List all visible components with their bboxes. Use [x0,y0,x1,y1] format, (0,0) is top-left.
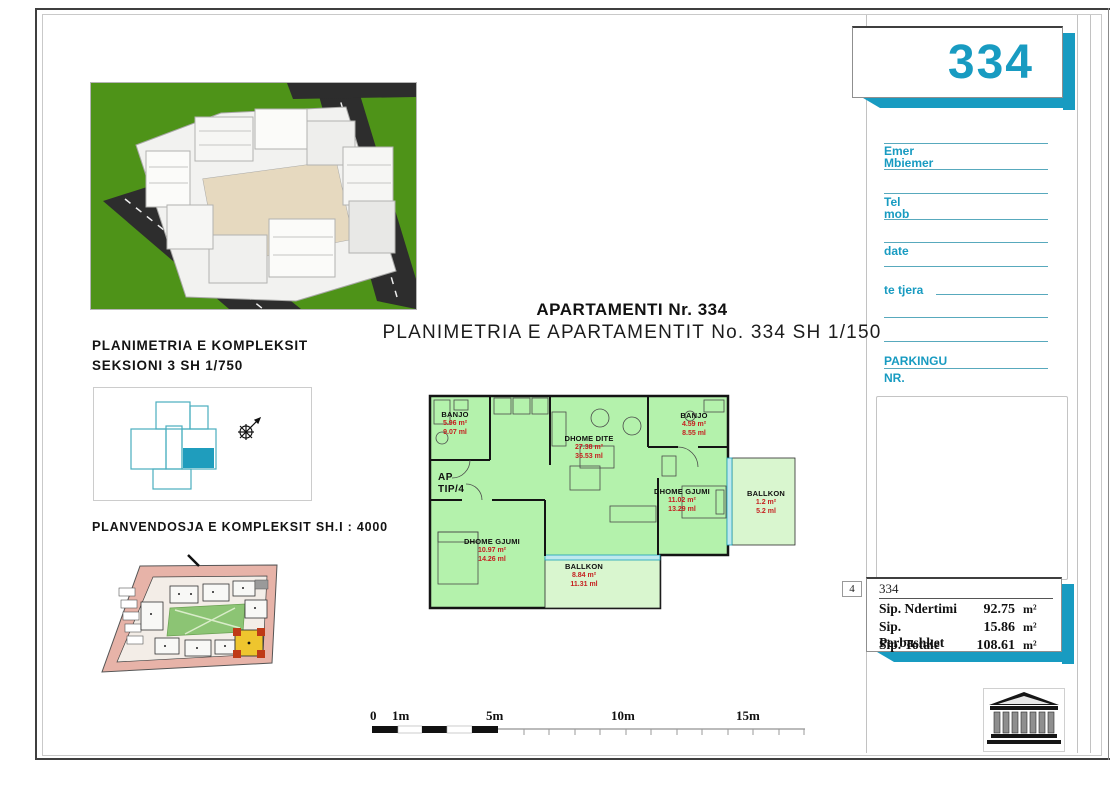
frame-bottom [35,758,1110,760]
summary-table-box: 334 Sip. Ndertimi 92.75 m² Sip. Perbashk… [866,577,1062,652]
room-label-dhome-gjumi-left: DHOME GJUMI 10.97 m² 14.26 ml [458,537,526,564]
site-plan-caption: PLANVENDOSJA E KOMPLEKSIT SH.I : 4000 [92,520,388,534]
ribbon-face: 334 [852,26,1063,98]
apartment-type-line2: TIP/4 [438,484,464,496]
scale-bar: 0 1m 5m 10m 15m [368,708,813,740]
section-key-plan [93,387,312,501]
room-label-ballkon-bottom: BALLKON 8.84 m² 11.31 ml [554,562,614,589]
table-row: Sip. Totale 108.61 m² [879,637,1053,655]
form-label-parkingu: PARKINGU [884,355,947,367]
form-line [884,266,1048,267]
apartment-number-box: 334 [852,26,1063,98]
room-label-dhome-gjumi-right: DHOME GJUMI 11.02 m² 13.29 ml [648,487,716,514]
highlighted-building [233,628,265,658]
form-label-mbiemer: Mbiemer [884,157,933,169]
room-label-dhome-dite: DHOME DITE 27.38 m² 36.53 ml [557,434,621,461]
scale-tick-label: 1m [392,708,409,724]
summary-apartment-id: 334 [879,581,1053,599]
form-label-te-tjera: te tjera [884,284,923,296]
apartment-type-label: AP TIP/4 [438,472,464,496]
table-row: Sip. Ndertimi 92.75 m² [879,601,1053,619]
frame-right [1108,8,1109,760]
apartment-number: 334 [853,28,1062,97]
sheet-title: APARTAMENTI Nr. 334 [382,300,882,320]
row-marker: 4 [842,581,862,597]
form-label-date: date [884,245,909,257]
form-line [884,242,1048,243]
complex-plan-caption: PLANIMETRIA E KOMPLEKSIT SEKSIONI 3 SH 1… [92,336,308,376]
frame-top [35,8,1110,10]
notes-box [876,396,1068,580]
form-label-nr: NR. [884,372,905,384]
ribbon-face: 334 Sip. Ndertimi 92.75 m² Sip. Perbashk… [866,577,1062,652]
right-divider-1 [1077,15,1078,753]
form-line [884,219,1048,220]
room-label-ballkon-right: BALLKON 1.2 m² 5.2 ml [736,489,796,516]
site-plan [95,548,335,686]
complex-3d-render [90,82,417,310]
complex-plan-caption-line1: PLANIMETRIA E KOMPLEKSIT [92,336,308,356]
sheet-subtitle: PLANIMETRIA E APARTAMENTIT No. 334 SH 1/… [340,322,924,344]
room-label-banjo-1: BANJO 5.96 m² 9.07 ml [430,410,480,437]
right-divider-2 [1090,15,1091,753]
architect-logo-icon [983,688,1065,752]
frame-left [35,8,37,760]
table-row: Sip. Perbashket 15.86 m² [879,619,1053,637]
drawing-sheet: 334 Emer Mbiemer Tel mob date te tjera P… [0,0,1116,788]
complex-plan-caption-line2: SEKSIONI 3 SH 1/750 [92,356,308,376]
scale-bar-graphic [368,725,813,739]
form-line [884,317,1048,318]
form-line [884,169,1048,170]
form-line [884,368,1048,369]
form-line [936,294,1048,295]
scale-tick-label: 0 [370,708,377,724]
room-label-banjo-2: BANJO 4.59 m² 8.55 ml [668,411,720,438]
north-arrow-icon [238,418,260,440]
scale-tick-label: 5m [486,708,503,724]
scale-tick-label: 15m [736,708,760,724]
highlighted-unit [183,448,214,468]
scale-tick-label: 10m [611,708,635,724]
summary-table: 334 Sip. Ndertimi 92.75 m² Sip. Perbashk… [867,579,1061,651]
form-line [884,193,1048,194]
apartment-type-line1: AP [438,472,464,484]
